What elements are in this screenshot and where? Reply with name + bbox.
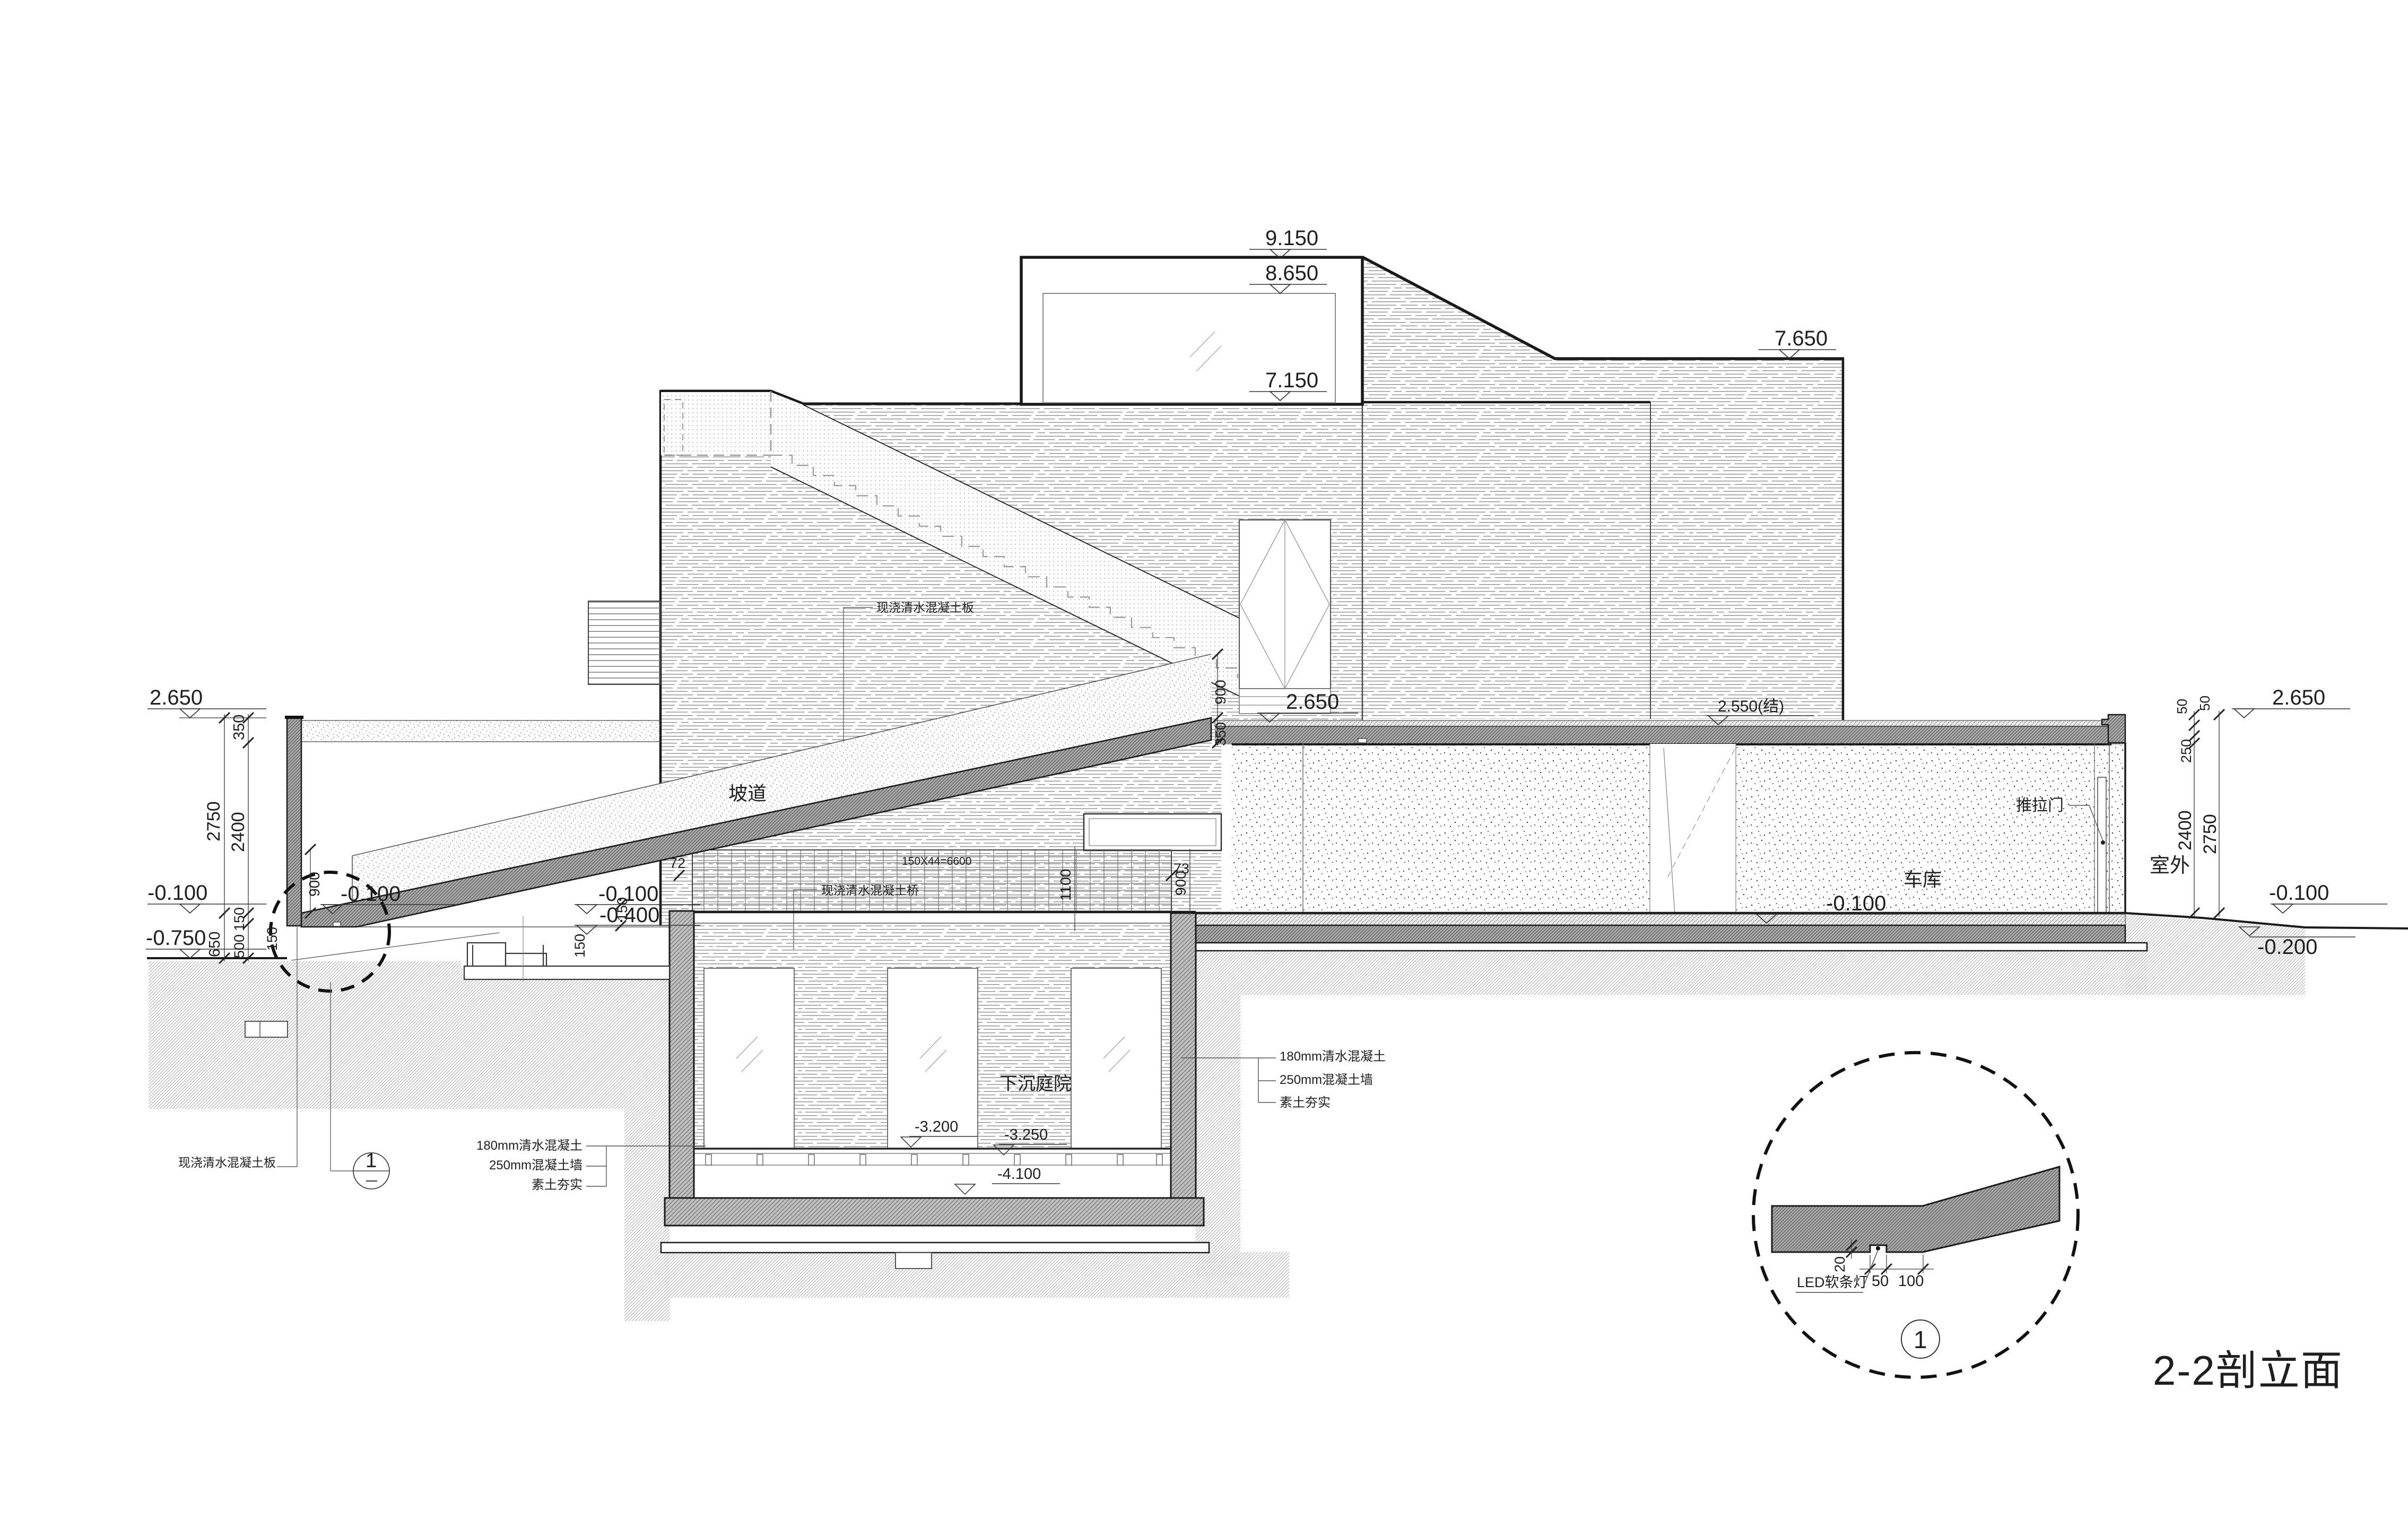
svg-text:150: 150: [572, 934, 588, 958]
svg-text:50: 50: [1872, 1273, 1889, 1290]
svg-text:250mm混凝土墙: 250mm混凝土墙: [1280, 1073, 1373, 1087]
svg-text:150X44=6600: 150X44=6600: [902, 855, 971, 867]
svg-text:2.550(结): 2.550(结): [1718, 698, 1784, 715]
svg-text:素土夯实: 素土夯实: [1280, 1096, 1331, 1110]
svg-text:1: 1: [1914, 1326, 1927, 1353]
svg-text:350: 350: [1213, 722, 1229, 746]
svg-text:-0.100: -0.100: [1826, 892, 1886, 915]
svg-text:180mm清水混凝土: 180mm清水混凝土: [1280, 1049, 1386, 1064]
svg-text:7.650: 7.650: [1775, 327, 1828, 350]
svg-text:900: 900: [306, 872, 323, 897]
svg-text:900: 900: [1172, 871, 1189, 896]
svg-text:-0.100: -0.100: [341, 882, 401, 906]
svg-text:-3.250: -3.250: [1004, 1126, 1048, 1143]
svg-text:9.150: 9.150: [1265, 227, 1318, 250]
svg-text:50: 50: [2197, 696, 2213, 711]
svg-text:250: 250: [2178, 739, 2194, 763]
svg-text:现浇清水混凝土板: 现浇清水混凝土板: [178, 1156, 276, 1169]
svg-text:350: 350: [231, 715, 248, 740]
svg-text:-0.750: -0.750: [146, 926, 206, 950]
svg-text:坡道: 坡道: [728, 783, 767, 804]
svg-text:7.150: 7.150: [1265, 369, 1318, 392]
svg-text:现浇清水混凝土板: 现浇清水混凝土板: [876, 601, 974, 614]
svg-text:素土夯实: 素土夯实: [532, 1178, 583, 1192]
svg-text:180mm清水混凝土: 180mm清水混凝土: [476, 1139, 583, 1153]
svg-text:50: 50: [2174, 699, 2190, 714]
svg-text:2.650: 2.650: [150, 686, 203, 709]
svg-text:20: 20: [1832, 1256, 1848, 1272]
svg-text:500: 500: [231, 934, 247, 958]
svg-text:LED软条灯: LED软条灯: [1797, 1274, 1868, 1290]
svg-text:100: 100: [1898, 1273, 1924, 1290]
svg-text:8.650: 8.650: [1265, 262, 1318, 285]
svg-text:2750: 2750: [204, 801, 224, 841]
svg-text:2-2剖立面: 2-2剖立面: [2153, 1347, 2343, 1394]
svg-text:2.650: 2.650: [1286, 690, 1339, 714]
svg-text:-0.100: -0.100: [2269, 881, 2329, 905]
svg-text:下沉庭院: 下沉庭院: [999, 1074, 1072, 1094]
svg-text:2.650: 2.650: [2272, 686, 2325, 709]
svg-text:250mm混凝土墙: 250mm混凝土墙: [489, 1158, 583, 1173]
svg-text:-3.200: -3.200: [915, 1118, 958, 1135]
svg-text:650: 650: [206, 932, 223, 957]
svg-text:150: 150: [231, 907, 247, 931]
svg-text:150: 150: [264, 927, 280, 951]
svg-text:推拉门: 推拉门: [2016, 797, 2064, 814]
svg-text:2400: 2400: [2175, 810, 2195, 850]
svg-text:-0.100: -0.100: [147, 881, 207, 905]
svg-text:-4.100: -4.100: [997, 1166, 1041, 1183]
svg-text:900: 900: [1212, 680, 1229, 705]
svg-text:2400: 2400: [228, 812, 248, 852]
svg-text:1: 1: [366, 1150, 377, 1172]
svg-text:室外: 室外: [2150, 855, 2190, 877]
svg-text:现浇清水混凝土桥: 现浇清水混凝土桥: [821, 883, 919, 897]
svg-text:2750: 2750: [2200, 814, 2220, 854]
svg-text:1100: 1100: [1057, 869, 1074, 901]
svg-text:-0.200: -0.200: [2257, 935, 2317, 959]
svg-text:车库: 车库: [1903, 869, 1942, 890]
svg-text:72: 72: [670, 855, 685, 871]
